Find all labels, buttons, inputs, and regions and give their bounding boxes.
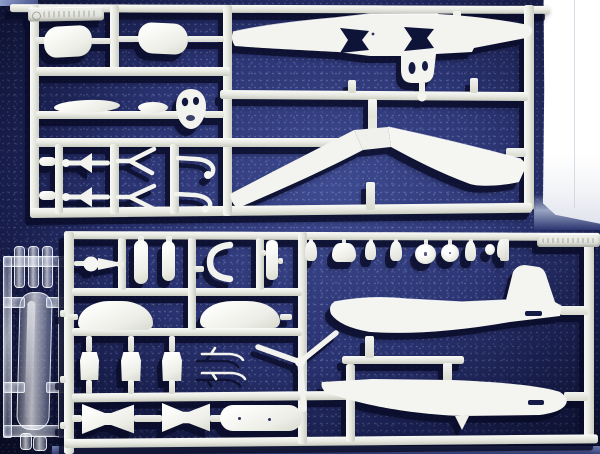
clear-canopy [16, 292, 53, 431]
starboard-panel [388, 127, 526, 186]
photo-model-kit-sprues [0, 0, 600, 454]
left-nub-1 [60, 310, 66, 317]
lower-fuselage [321, 379, 566, 416]
runner-b-top [64, 231, 600, 241]
part-number-emboss [542, 238, 595, 243]
upper-wing-part [220, 6, 536, 106]
stub-seat3-top [169, 336, 175, 352]
gear-strut-2 [116, 182, 160, 212]
exhaust-stack-1 [134, 240, 148, 284]
stub-seat2-bot [128, 380, 134, 394]
intake-lip-part [202, 240, 238, 284]
clear-runner-left [3, 256, 12, 438]
clear-sprue [2, 246, 66, 454]
lower-wing-panels [220, 118, 536, 216]
cowl-half-2 [200, 301, 280, 328]
cowl-front-part [174, 88, 208, 130]
plate-hole-1 [238, 417, 241, 420]
paper-crease-line [574, 0, 576, 208]
clear-bit-2 [33, 436, 47, 451]
maker-tag-emboss [43, 11, 98, 18]
stub-cowl2 [280, 314, 292, 320]
exhaust-stack-2 [162, 241, 175, 281]
stub-seat1-bot [86, 380, 92, 394]
stabilizer-small [138, 102, 168, 113]
stub-bt-mid [134, 415, 162, 422]
spinner-ball-part [74, 252, 124, 276]
fuselage-halves [312, 254, 600, 436]
stub-c-left [194, 266, 204, 272]
sprue-top [8, 2, 548, 224]
runner-b-bottom [64, 434, 598, 448]
slotted-brace-part [266, 240, 278, 280]
sprue-bottom [60, 226, 600, 454]
stub-seat1-top [86, 336, 92, 352]
peg-row1 [39, 157, 56, 166]
stub-cowl1 [68, 314, 78, 320]
aerial-1 [200, 346, 246, 361]
seat-3 [162, 352, 182, 381]
drop-tank-half-left [43, 25, 93, 58]
upper-fuselage [330, 265, 562, 333]
seat-2 [121, 352, 141, 381]
seat-1 [80, 352, 99, 380]
clear-light-part-3 [42, 246, 53, 288]
maker-logo-circle [32, 11, 41, 20]
stub-seat2-top [128, 336, 134, 352]
blade-pair-1 [82, 404, 134, 434]
brace-nub-l [261, 250, 266, 256]
canopy-highlight [24, 301, 35, 418]
clear-light-part-1 [14, 246, 25, 288]
stub-tank2-left [118, 36, 140, 42]
left-nub-3 [60, 422, 66, 429]
runner-b-h1 [72, 288, 302, 296]
maker-tag [28, 6, 104, 21]
cowl-half-1 [78, 301, 153, 330]
clear-bit-1 [20, 433, 32, 450]
stub-seat3-bot [169, 380, 175, 394]
stub-tank1-right [91, 38, 111, 44]
brace-nub-r [278, 258, 283, 264]
stub-bt1-l [72, 415, 82, 422]
runner-b-v3 [256, 238, 264, 290]
aerial-2 [200, 366, 248, 382]
peg-row2 [39, 191, 56, 200]
part-number-tag [537, 234, 600, 247]
dart-part-2 [60, 186, 112, 208]
hook-part-1 [176, 148, 224, 180]
runner-b-v2 [188, 238, 196, 330]
dart-part-1 [60, 152, 112, 174]
blade-pair-2 [162, 403, 210, 432]
gear-strut-1 [116, 146, 160, 176]
left-nub-2 [60, 376, 66, 383]
stub-tank2-right [187, 36, 224, 42]
hook-part-2 [174, 186, 222, 214]
drop-tank-half-right [137, 22, 188, 55]
clear-light-part-2 [28, 246, 39, 288]
runner-h-under-tanks [36, 67, 230, 76]
